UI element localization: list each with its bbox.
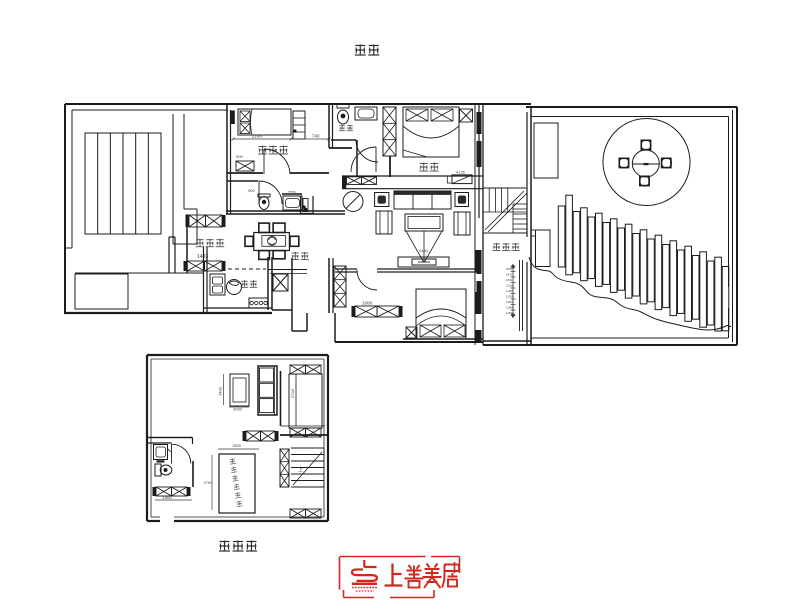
svg-text:720: 720 [288, 190, 296, 195]
svg-text:1670: 1670 [506, 273, 513, 277]
svg-text:2744: 2744 [290, 388, 295, 398]
svg-text:1840: 1840 [506, 278, 513, 282]
svg-text:11010: 11010 [506, 284, 514, 288]
svg-text:900: 900 [248, 188, 255, 193]
svg-text:2140: 2140 [252, 134, 263, 139]
svg-text:1460: 1460 [162, 495, 173, 500]
svg-text:1608: 1608 [362, 301, 373, 306]
svg-text:11520: 11520 [506, 300, 514, 304]
svg-text:740: 740 [312, 134, 320, 139]
svg-text:4135: 4135 [456, 170, 466, 175]
svg-text:11690: 11690 [506, 306, 514, 310]
svg-text:2700: 2700 [204, 480, 214, 485]
svg-text:上: 上 [298, 466, 303, 473]
svg-text:900: 900 [236, 154, 243, 159]
svg-text:1400: 1400 [218, 386, 223, 396]
svg-text:11180: 11180 [506, 289, 514, 293]
svg-text:1500: 1500 [232, 443, 242, 448]
svg-text:11350: 11350 [506, 295, 514, 299]
